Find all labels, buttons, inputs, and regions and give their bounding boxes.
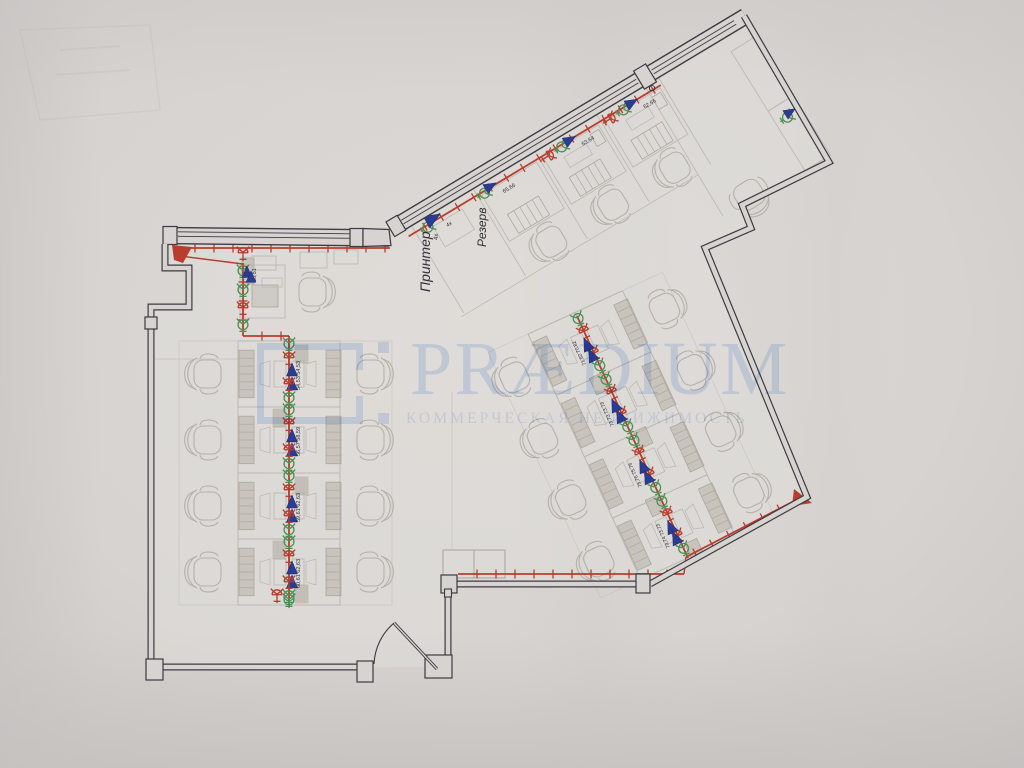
svg-text:Резерв: Резерв	[475, 208, 489, 247]
svg-text:Принтер: Принтер	[417, 231, 433, 292]
svg-text:59,61 62,63: 59,61 62,63	[296, 493, 302, 522]
svg-text:60,61 62,63: 60,61 62,63	[296, 559, 302, 588]
svg-text:PRÆDIUM: PRÆDIUM	[410, 327, 790, 411]
svg-text:56,57 58,59: 56,57 58,59	[296, 427, 302, 456]
svg-text:4х: 4х	[434, 234, 440, 240]
svg-text:КОММЕРЧЕСКАЯ НЕДВИЖИМОСТЬ: КОММЕРЧЕСКАЯ НЕДВИЖИМОСТЬ	[406, 410, 748, 427]
svg-text:54,53 54,53: 54,53 54,53	[296, 361, 302, 390]
